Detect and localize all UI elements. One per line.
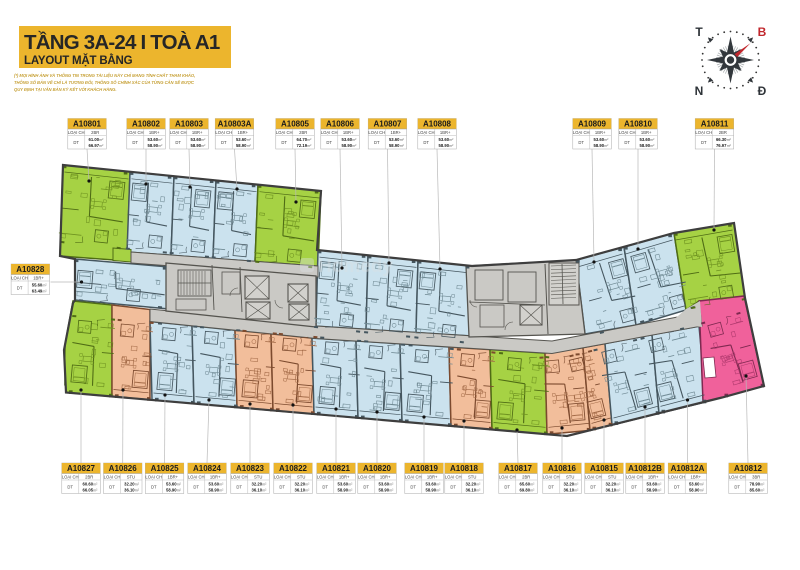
svg-text:53.60: 53.60 xyxy=(640,137,651,142)
svg-text:LOẠI CH: LOẠI CH xyxy=(358,475,375,480)
svg-text:2BR: 2BR xyxy=(85,475,93,480)
svg-text:DT: DT xyxy=(132,140,138,145)
svg-text:A10816: A10816 xyxy=(548,464,577,473)
svg-text:DT: DT xyxy=(590,485,596,490)
svg-text:LOẠI CH: LOẠI CH xyxy=(619,130,636,135)
svg-text:69.80: 69.80 xyxy=(520,487,531,492)
svg-text:2BR: 2BR xyxy=(91,130,99,135)
svg-text:LOẠI CH: LOẠI CH xyxy=(729,475,746,480)
svg-text:LOẠI CH: LOẠI CH xyxy=(104,475,121,480)
svg-text:LOẠI CH: LOẠI CH xyxy=(231,475,248,480)
svg-text:A10823: A10823 xyxy=(236,464,265,473)
svg-text:53.60: 53.60 xyxy=(426,481,437,486)
svg-text:58.90: 58.90 xyxy=(209,487,220,492)
svg-text:53.60: 53.60 xyxy=(647,481,658,486)
svg-text:LOẠI CH: LOẠI CH xyxy=(317,475,334,480)
svg-text:58.90: 58.90 xyxy=(338,487,349,492)
svg-text:1BR+: 1BR+ xyxy=(595,130,606,135)
svg-text:LOẠI CH: LOẠI CH xyxy=(274,475,291,480)
svg-text:LOẠI CH: LOẠI CH xyxy=(321,130,338,135)
svg-text:LOẠI CH: LOẠI CH xyxy=(215,130,232,135)
svg-text:55.60: 55.60 xyxy=(32,282,43,287)
svg-text:A10817: A10817 xyxy=(504,464,533,473)
svg-text:32.20: 32.20 xyxy=(564,481,575,486)
svg-text:1BR+: 1BR+ xyxy=(380,475,391,480)
svg-text:58.90: 58.90 xyxy=(148,143,159,148)
svg-text:1BR+: 1BR+ xyxy=(691,475,702,480)
svg-text:1BR+: 1BR+ xyxy=(427,475,438,480)
svg-text:QUY ĐỊNH TẠI VĂN BẢN KÝ KẾT VỚ: QUY ĐỊNH TẠI VĂN BẢN KÝ KẾT VỚI KHÁCH HÀ… xyxy=(14,87,116,92)
svg-text:58.90: 58.90 xyxy=(389,143,400,148)
svg-text:DT: DT xyxy=(67,485,73,490)
svg-text:DT: DT xyxy=(450,485,456,490)
svg-text:LOẠI CH: LOẠI CH xyxy=(170,130,187,135)
svg-text:A10801: A10801 xyxy=(73,120,102,129)
svg-text:A10819: A10819 xyxy=(410,464,439,473)
svg-text:DT: DT xyxy=(624,140,630,145)
svg-text:A10809: A10809 xyxy=(578,120,607,129)
svg-text:60.60: 60.60 xyxy=(83,481,94,486)
svg-text:LOẠI CH: LOẠI CH xyxy=(445,475,462,480)
svg-text:A10827: A10827 xyxy=(67,464,96,473)
svg-text:A10821: A10821 xyxy=(322,464,351,473)
svg-text:66.30: 66.30 xyxy=(716,137,727,142)
svg-text:1BR+: 1BR+ xyxy=(33,276,44,281)
svg-text:1BR+: 1BR+ xyxy=(648,475,659,480)
svg-text:1BR+: 1BR+ xyxy=(391,130,402,135)
svg-text:(*) MỌI HÌNH ẢNH VÀ THÔNG TIN: (*) MỌI HÌNH ẢNH VÀ THÔNG TIN TRONG TÀI … xyxy=(14,73,195,78)
svg-text:STU: STU xyxy=(566,475,574,480)
svg-text:Đ: Đ xyxy=(758,84,767,98)
svg-text:53.60: 53.60 xyxy=(342,137,353,142)
svg-text:1BR+: 1BR+ xyxy=(210,475,221,480)
svg-text:76.97: 76.97 xyxy=(716,143,727,148)
svg-text:DT: DT xyxy=(504,485,510,490)
svg-text:LOẠI CH: LOẠI CH xyxy=(543,475,560,480)
svg-text:B: B xyxy=(758,25,767,39)
svg-text:A10812: A10812 xyxy=(734,464,763,473)
svg-text:53.60: 53.60 xyxy=(166,481,177,486)
svg-text:36.10: 36.10 xyxy=(295,487,306,492)
svg-text:58.90: 58.90 xyxy=(379,487,390,492)
svg-text:A10818: A10818 xyxy=(450,464,479,473)
svg-text:61.00: 61.00 xyxy=(89,137,100,142)
svg-text:A10826: A10826 xyxy=(109,464,138,473)
svg-text:DT: DT xyxy=(374,140,380,145)
svg-text:DT: DT xyxy=(221,140,227,145)
svg-text:A10828: A10828 xyxy=(16,265,45,274)
svg-text:A10807: A10807 xyxy=(373,120,402,129)
svg-text:LOẠI CH: LOẠI CH xyxy=(668,475,685,480)
svg-text:LOẠI CH: LOẠI CH xyxy=(62,475,79,480)
svg-text:65.60: 65.60 xyxy=(520,481,531,486)
svg-text:1BR+: 1BR+ xyxy=(343,130,354,135)
svg-text:32.20: 32.20 xyxy=(295,481,306,486)
svg-text:32.20: 32.20 xyxy=(466,481,477,486)
svg-text:LOẠI CH: LOẠI CH xyxy=(276,130,293,135)
svg-text:LOẠI CH: LOẠI CH xyxy=(418,130,435,135)
svg-text:DT: DT xyxy=(109,485,115,490)
svg-text:DT: DT xyxy=(73,140,79,145)
svg-text:DT: DT xyxy=(17,286,23,291)
svg-text:32.20: 32.20 xyxy=(252,481,263,486)
svg-text:DT: DT xyxy=(322,485,328,490)
svg-text:LOẠI CH: LOẠI CH xyxy=(68,130,85,135)
svg-text:2BR: 2BR xyxy=(522,475,530,480)
svg-text:64.70: 64.70 xyxy=(297,137,308,142)
svg-text:58.90: 58.90 xyxy=(166,487,177,492)
svg-text:DT: DT xyxy=(734,485,740,490)
svg-text:1BR+: 1BR+ xyxy=(238,130,249,135)
svg-text:DT: DT xyxy=(326,140,332,145)
svg-text:DT: DT xyxy=(423,140,429,145)
svg-text:DT: DT xyxy=(631,485,637,490)
svg-text:LOẠI CH: LOẠI CH xyxy=(573,130,590,135)
svg-text:DT: DT xyxy=(193,485,199,490)
svg-text:LOẠI CH: LOẠI CH xyxy=(585,475,602,480)
svg-text:53.60: 53.60 xyxy=(338,481,349,486)
svg-text:58.90: 58.90 xyxy=(689,487,700,492)
svg-text:STU: STU xyxy=(468,475,476,480)
svg-text:58.90: 58.90 xyxy=(426,487,437,492)
svg-text:A10802: A10802 xyxy=(132,120,161,129)
svg-text:A10825: A10825 xyxy=(151,464,180,473)
svg-text:1BR+: 1BR+ xyxy=(641,130,652,135)
svg-text:53.60: 53.60 xyxy=(594,137,605,142)
svg-text:DT: DT xyxy=(279,485,285,490)
svg-text:2BR: 2BR xyxy=(719,130,727,135)
svg-text:T: T xyxy=(695,25,703,39)
svg-text:2BR: 2BR xyxy=(299,130,307,135)
svg-text:58.90: 58.90 xyxy=(594,143,605,148)
svg-text:LOẠI CH: LOẠI CH xyxy=(188,475,205,480)
svg-text:A10812A: A10812A xyxy=(671,464,705,473)
svg-text:66.97: 66.97 xyxy=(89,143,100,148)
svg-text:1BR+: 1BR+ xyxy=(192,130,203,135)
svg-text:3BR: 3BR xyxy=(752,475,760,480)
svg-text:53.60: 53.60 xyxy=(148,137,159,142)
svg-text:A10805: A10805 xyxy=(281,120,310,129)
svg-text:58.90: 58.90 xyxy=(439,143,450,148)
svg-text:DT: DT xyxy=(151,485,157,490)
svg-text:THÔNG SỐ BẢN VẼ CHỈ LÀ TƯƠNG Đ: THÔNG SỐ BẢN VẼ CHỈ LÀ TƯƠNG ĐỐI, THÔNG … xyxy=(14,80,195,85)
svg-text:DT: DT xyxy=(236,485,242,490)
svg-text:A10822: A10822 xyxy=(279,464,308,473)
svg-text:A10812B: A10812B xyxy=(628,464,662,473)
svg-text:53.60: 53.60 xyxy=(236,137,247,142)
svg-text:STU: STU xyxy=(254,475,262,480)
svg-text:A10815: A10815 xyxy=(590,464,619,473)
svg-text:DT: DT xyxy=(674,485,680,490)
svg-text:32.20: 32.20 xyxy=(606,481,617,486)
svg-text:LOẠI CH: LOẠI CH xyxy=(695,130,712,135)
svg-text:36.10: 36.10 xyxy=(466,487,477,492)
svg-text:LOẠI CH: LOẠI CH xyxy=(11,276,28,281)
svg-text:78.90: 78.90 xyxy=(750,481,761,486)
svg-text:53.60: 53.60 xyxy=(689,481,700,486)
svg-text:LOẠI CH: LOẠI CH xyxy=(405,475,422,480)
svg-text:N: N xyxy=(695,84,704,98)
svg-text:LOẠI CH: LOẠI CH xyxy=(127,130,144,135)
svg-text:32.20: 32.20 xyxy=(124,481,135,486)
svg-text:1BR+: 1BR+ xyxy=(149,130,160,135)
svg-text:A10803A: A10803A xyxy=(218,120,252,129)
svg-text:LOẠI CH: LOẠI CH xyxy=(499,475,516,480)
svg-text:A10811: A10811 xyxy=(701,120,729,129)
svg-text:63.49: 63.49 xyxy=(32,288,43,293)
svg-text:A10820: A10820 xyxy=(363,464,392,473)
svg-text:58.90: 58.90 xyxy=(342,143,353,148)
svg-text:53.60: 53.60 xyxy=(209,481,220,486)
svg-text:58.90: 58.90 xyxy=(640,143,651,148)
svg-text:DT: DT xyxy=(281,140,287,145)
svg-text:DT: DT xyxy=(175,140,181,145)
svg-text:DT: DT xyxy=(701,140,707,145)
svg-text:1BR+: 1BR+ xyxy=(168,475,179,480)
svg-text:A10824: A10824 xyxy=(193,464,222,473)
svg-text:LAYOUT MẶT BẰNG: LAYOUT MẶT BẰNG xyxy=(24,54,133,67)
svg-text:STU: STU xyxy=(127,475,135,480)
svg-text:A10810: A10810 xyxy=(624,120,653,129)
svg-text:1BR+: 1BR+ xyxy=(339,475,350,480)
svg-text:DT: DT xyxy=(410,485,416,490)
svg-text:DT: DT xyxy=(548,485,554,490)
svg-text:36.10: 36.10 xyxy=(564,487,575,492)
svg-text:58.90: 58.90 xyxy=(647,487,658,492)
svg-text:DT: DT xyxy=(363,485,369,490)
svg-text:TẦNG 3A-24 I TOÀ A1: TẦNG 3A-24 I TOÀ A1 xyxy=(24,31,220,54)
svg-text:53.60: 53.60 xyxy=(389,137,400,142)
svg-text:53.60: 53.60 xyxy=(439,137,450,142)
svg-text:Homedy: Homedy xyxy=(318,256,393,277)
svg-text:72.19: 72.19 xyxy=(297,143,308,148)
svg-text:LOẠI CH: LOẠI CH xyxy=(368,130,385,135)
svg-text:A10803: A10803 xyxy=(175,120,204,129)
svg-text:DT: DT xyxy=(578,140,584,145)
svg-text:53.60: 53.60 xyxy=(379,481,390,486)
svg-text:STU: STU xyxy=(297,475,305,480)
svg-text:LOẠI CH: LOẠI CH xyxy=(626,475,643,480)
svg-text:53.60: 53.60 xyxy=(191,137,202,142)
svg-text:1BR+: 1BR+ xyxy=(440,130,451,135)
svg-text:58.90: 58.90 xyxy=(191,143,202,148)
svg-text:85.60: 85.60 xyxy=(750,487,761,492)
svg-text:36.10: 36.10 xyxy=(124,487,135,492)
svg-text:66.05: 66.05 xyxy=(83,487,94,492)
svg-text:LOẠI CH: LOẠI CH xyxy=(145,475,162,480)
svg-text:A10808: A10808 xyxy=(423,120,452,129)
svg-text:A10806: A10806 xyxy=(326,120,355,129)
svg-text:36.10: 36.10 xyxy=(606,487,617,492)
svg-text:58.90: 58.90 xyxy=(236,143,247,148)
svg-text:36.10: 36.10 xyxy=(252,487,263,492)
svg-text:STU: STU xyxy=(608,475,616,480)
